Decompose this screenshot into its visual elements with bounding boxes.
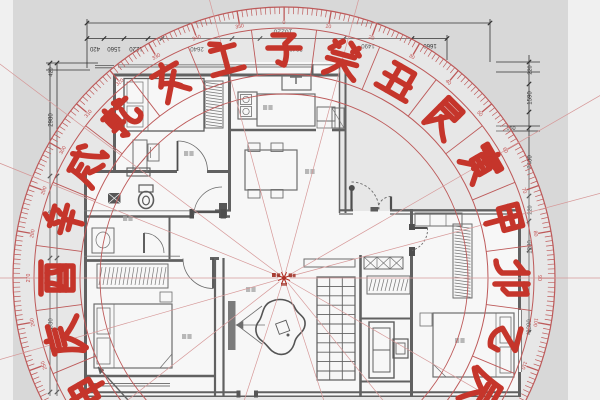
svg-text:2980: 2980 <box>49 113 55 127</box>
svg-text:1590: 1590 <box>528 91 534 105</box>
svg-text:220: 220 <box>528 65 534 74</box>
svg-text:0: 0 <box>283 20 286 26</box>
svg-text:80: 80 <box>532 230 539 237</box>
svg-text:10: 10 <box>325 23 332 30</box>
svg-text:1560: 1560 <box>107 45 121 51</box>
svg-text:420: 420 <box>49 67 55 76</box>
svg-text:420: 420 <box>89 45 100 51</box>
